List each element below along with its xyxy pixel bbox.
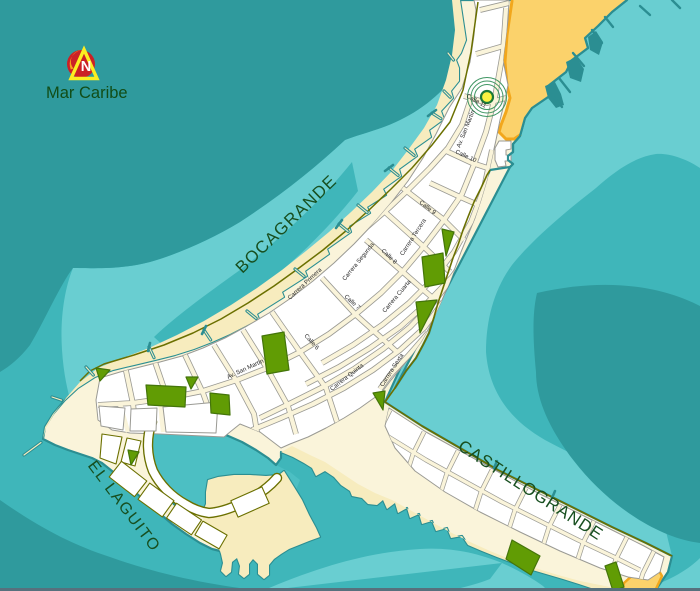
svg-text:Mar Caribe: Mar Caribe bbox=[46, 84, 128, 102]
svg-text:N: N bbox=[81, 59, 91, 75]
